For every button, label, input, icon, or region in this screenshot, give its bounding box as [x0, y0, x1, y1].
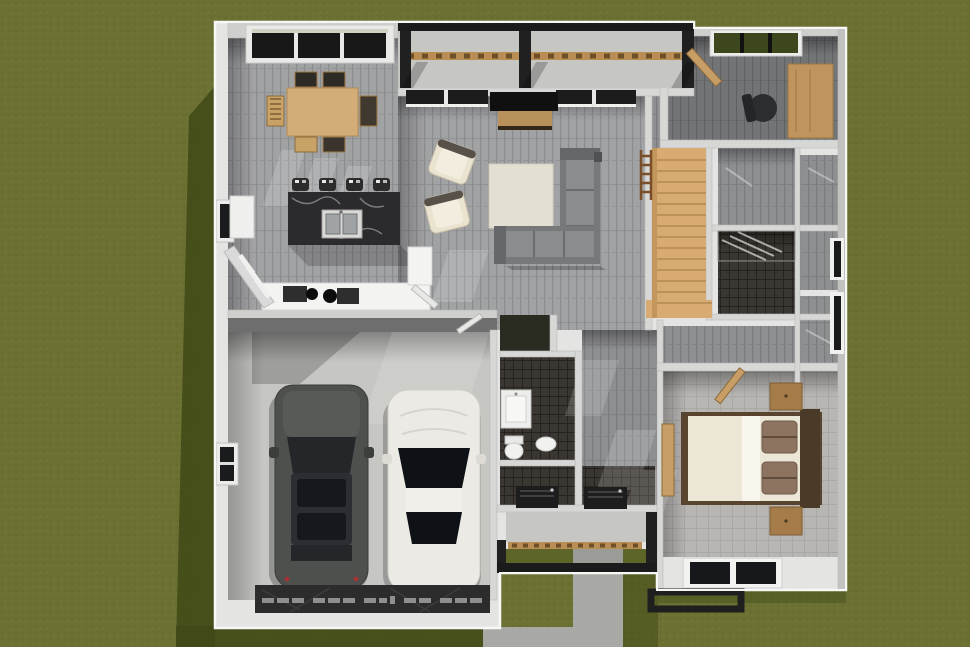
washer [516, 486, 558, 508]
hall-window-2 [830, 292, 844, 354]
front-walkway-upper [573, 549, 623, 563]
tall-cabinet [230, 196, 254, 238]
back-porch [398, 22, 698, 88]
garage-door-apron [255, 585, 490, 613]
island-shadow [288, 245, 420, 266]
island-sink [322, 210, 362, 238]
front-porch-post-right [646, 512, 657, 563]
front-porch-beam [497, 563, 657, 573]
bedroom-bench [662, 424, 674, 496]
dryer [584, 487, 627, 509]
dining-table [287, 88, 358, 136]
suv-car [269, 385, 374, 591]
floor-plan-render [0, 0, 970, 647]
under-stair-closet-floor [500, 315, 550, 351]
living-window-right [556, 90, 636, 107]
porch-wood-trim [404, 52, 688, 60]
granite-right [337, 288, 359, 304]
tv-console [498, 111, 552, 130]
bedroom-hall-floor [663, 326, 795, 363]
front-porch-trim [508, 542, 642, 549]
area-rug [489, 164, 553, 228]
front-porch-post-left [497, 540, 506, 563]
powder-vanity [501, 390, 531, 428]
dining-window [246, 25, 394, 63]
toilet-2 [536, 437, 556, 451]
living-window-left [406, 90, 488, 107]
driveway-flare [483, 627, 623, 647]
granite-left [283, 286, 307, 302]
bed [681, 409, 822, 508]
bedroom-window [683, 558, 782, 588]
porch-beam [398, 22, 694, 31]
hall-window-1 [830, 238, 844, 280]
counter-return [408, 247, 432, 285]
office-window [710, 30, 802, 56]
tv [490, 92, 558, 111]
garage-window [216, 443, 238, 485]
front-porch-slab [506, 512, 657, 542]
closet1-floor [800, 155, 838, 225]
office-chair [741, 93, 777, 122]
sedan-car [382, 390, 486, 596]
toilet [505, 436, 523, 459]
front-porch [497, 512, 657, 573]
